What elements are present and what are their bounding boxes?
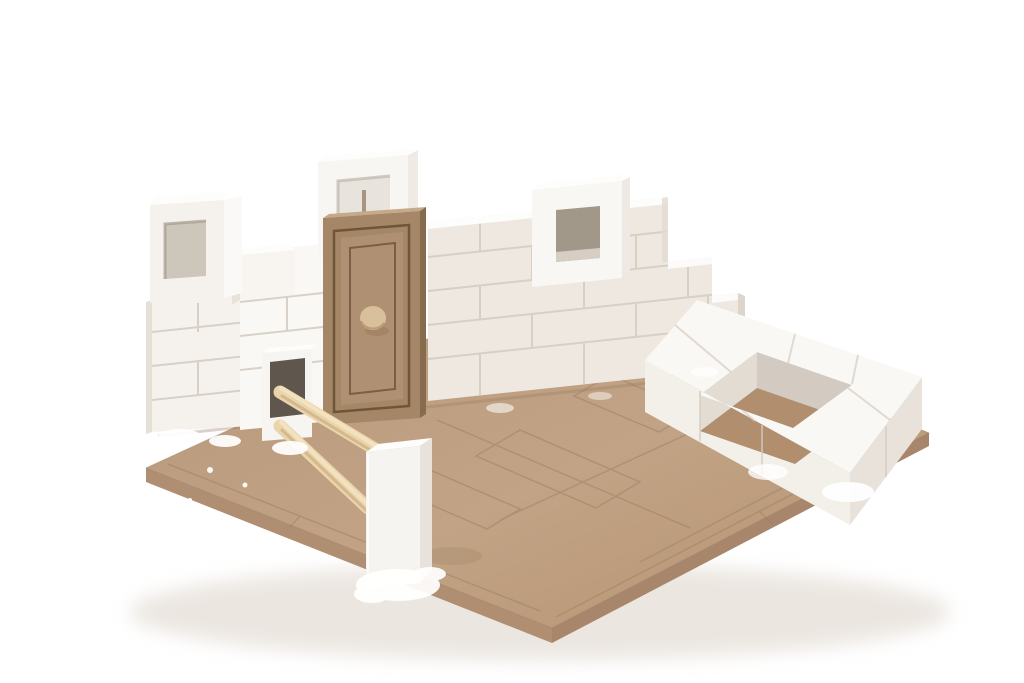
glue-blob-ring-front [748,464,788,480]
middle-window-frame-side [622,177,630,278]
glue-blob-post-spill [354,585,390,603]
fence-post-side [420,438,432,583]
plaster-crumb-2 [243,483,248,488]
corner-step-brick-face [240,250,295,300]
product-photo: A partially built miniature model: stepp… [0,0,1024,683]
door-frame-side-face [420,207,426,418]
fence-post [366,438,432,589]
left-window-frame-side [224,196,242,298]
plaster-crumb-1 [207,467,213,473]
glue-blob-wall-right-1 [486,403,514,413]
left-window-frame-brick [150,191,242,303]
wall-left-end-face [146,300,152,434]
middle-window-frame-brick [532,174,630,287]
door-assembly [318,149,426,425]
photo-canvas [0,0,1024,683]
glue-blob-wall-left-2 [209,435,241,447]
glue-blob-ring-back [691,367,719,377]
glue-blob-corner-brick [272,441,308,455]
glue-blob-wall-right-2 [588,392,612,400]
glue-blob-ring-corner [822,482,874,502]
wall-step-edge-1 [662,197,668,263]
left-window-opening [165,221,206,279]
glue-blob-wall-left-1 [158,429,202,445]
plaster-crumb-3 [188,498,192,502]
fence-post-face [366,446,420,589]
glue-blob-post-right [414,567,446,581]
